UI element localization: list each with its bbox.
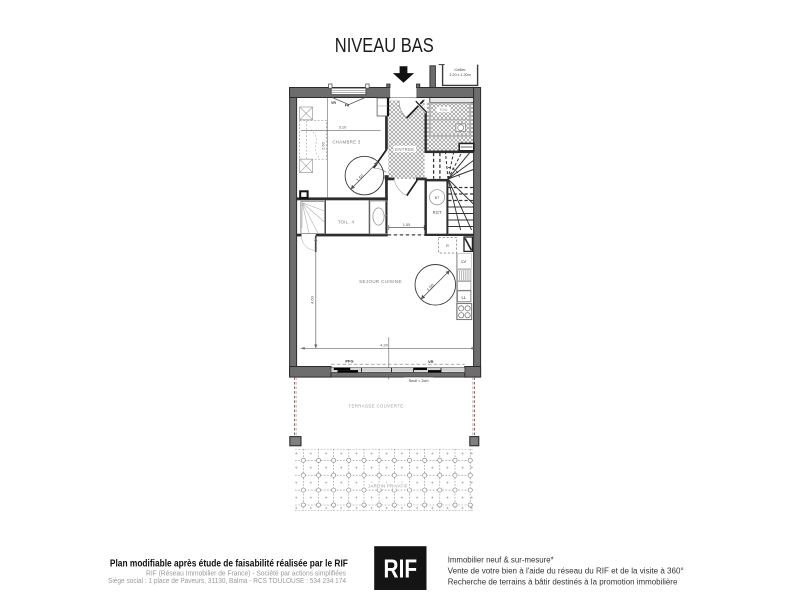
svg-text:R: R [446, 243, 449, 248]
svg-text:TOIL. 4: TOIL. 4 [338, 219, 355, 224]
svg-text:LV: LV [461, 259, 466, 264]
svg-text:FA: FA [345, 103, 350, 107]
svg-text:ENTREE: ENTREE [395, 147, 414, 152]
svg-text:Immobilier neuf & sur-mesure*: Immobilier neuf & sur-mesure* [448, 555, 554, 564]
svg-text:CHAMBRE 3: CHAMBRE 3 [332, 139, 361, 144]
svg-text:SEJOUR CUISINE: SEJOUR CUISINE [359, 279, 402, 284]
svg-text:1.55: 1.55 [403, 222, 411, 227]
svg-text:BT: BT [435, 196, 440, 200]
svg-text:TOIL: TOIL [439, 107, 448, 112]
svg-text:4.20: 4.20 [380, 342, 389, 347]
svg-text:Cellier: Cellier [454, 67, 466, 72]
svg-text:VR: VR [428, 359, 434, 364]
svg-text:TERRASSE COUVERTE: TERRASSE COUVERTE [349, 404, 404, 409]
svg-text:Plan modifiable après étude de: Plan modifiable après étude de faisabili… [110, 559, 348, 570]
svg-text:Seuil < 2cm: Seuil < 2cm [409, 379, 429, 383]
svg-text:NIVEAU BAS: NIVEAU BAS [335, 35, 434, 57]
svg-text:LL: LL [461, 295, 466, 300]
svg-text:JARDIN PRIVATIF: JARDIN PRIVATIF [368, 484, 408, 489]
svg-text:1.20 x 1.20m: 1.20 x 1.20m [449, 73, 470, 77]
svg-text:PFG: PFG [345, 358, 353, 363]
svg-text:VR: VR [331, 101, 336, 105]
svg-text:Recherche de terrains à bâtir: Recherche de terrains à bâtir destinés à… [448, 578, 678, 587]
svg-text:RIF (Réseau Immobilier de Fra: RIF (Réseau Immobilier de France) - Soci… [146, 570, 346, 577]
svg-text:3.10: 3.10 [339, 125, 348, 130]
svg-text:2.60: 2.60 [321, 141, 326, 150]
svg-text:4.60: 4.60 [309, 295, 314, 304]
svg-text:RGT: RGT [433, 210, 442, 215]
svg-text:Vente de votre bien à l'aide d: Vente de votre bien à l'aide du réseau d… [448, 567, 684, 576]
svg-text:Siège social : 1 place de Pave: Siège social : 1 place de Paveurs, 31130… [108, 578, 346, 585]
svg-text:RIF: RIF [384, 553, 418, 583]
